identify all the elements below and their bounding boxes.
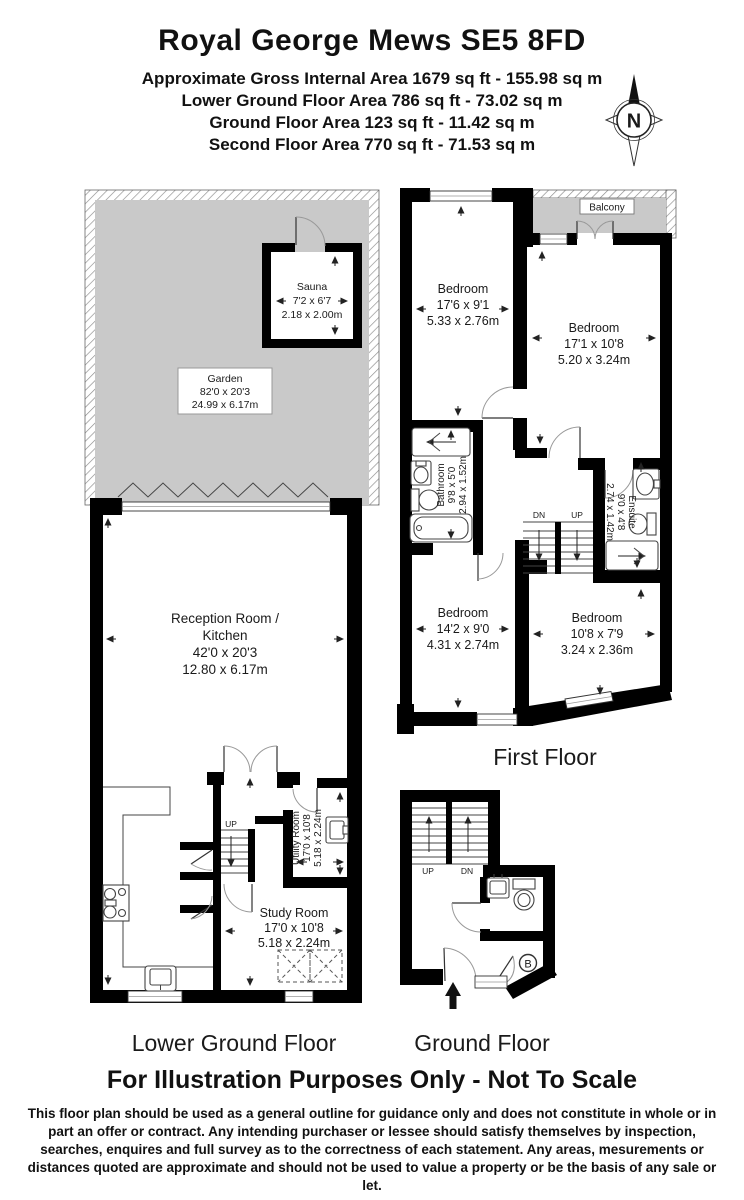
footer-title: For Illustration Purposes Only - Not To …	[0, 1066, 744, 1095]
entry-window	[475, 976, 507, 988]
boiler-badge: B	[520, 955, 537, 972]
utility-name: Utility Room	[291, 811, 302, 865]
ensuite-shower-icon	[606, 541, 658, 570]
study-window	[285, 991, 313, 1002]
first-floor-plan: Balcony	[397, 188, 676, 734]
bedroom-small-metric: 3.24 x 2.36m	[561, 643, 633, 657]
reception-name-line2: Kitchen	[202, 628, 247, 643]
bathroom: Bathroom 9'8 x 5'0 2.94 x 1.52m	[410, 428, 472, 542]
compass-north-label: N	[627, 111, 641, 133]
bedroom-small-imperial: 10'8 x 7'9	[571, 627, 624, 641]
bathroom-name: Bathroom	[436, 463, 447, 506]
garden-name: Garden	[207, 373, 242, 385]
bathroom-imperial: 9'8 x 5'0	[447, 466, 458, 503]
first-floor-caption: First Floor	[493, 744, 597, 770]
ensuite-imperial: 9'0 x 4'8	[615, 494, 626, 531]
study-metric: 5.18 x 2.24m	[258, 936, 330, 950]
garden-imperial: 82'0 x 20'3	[200, 386, 250, 398]
kitchen-window	[128, 991, 182, 1002]
reception-name-line1: Reception Room /	[171, 611, 279, 626]
balcony-label-box: Balcony	[580, 199, 634, 214]
ground-floor-caption: Ground Floor	[414, 1030, 550, 1056]
bathtub-icon	[410, 514, 472, 542]
ground-stairs-dn-label: DN	[461, 866, 473, 876]
sauna-name: Sauna	[297, 281, 328, 293]
sauna-metric: 2.18 x 2.00m	[282, 309, 343, 321]
study-imperial: 17'0 x 10'8	[264, 921, 324, 935]
first-floor-stairs-dn-label: DN	[533, 510, 545, 520]
balcony-edge-hatch-top	[533, 190, 676, 198]
floorplan-page: { "header": { "title": "Royal George Mew…	[0, 0, 744, 1200]
bedroom-front-name: Bedroom	[438, 282, 489, 296]
bedroom-front-imperial: 17'6 x 9'1	[437, 298, 490, 312]
garden-label-box: Garden 82'0 x 20'3 24.99 x 6.17m	[178, 368, 272, 414]
sauna-imperial: 7'2 x 6'7	[293, 295, 332, 307]
balcony-edge-hatch-right	[666, 190, 676, 238]
lower-ground-stairs-up-label: UP	[225, 819, 237, 829]
shower-icon	[412, 428, 470, 456]
lower-ground-floor-caption: Lower Ground Floor	[132, 1030, 337, 1056]
entrance-arrow-icon	[445, 982, 461, 1009]
first-floor-stairs-up-label: UP	[571, 510, 583, 520]
bedroom-front-window	[430, 191, 492, 201]
bedroom-rear-name: Bedroom	[569, 321, 620, 335]
utility-metric: 5.18 x 2.24m	[313, 809, 324, 867]
ensuite-name: Ensuite	[626, 495, 637, 529]
bathroom-metric: 2.94 x 1.52m	[458, 456, 469, 514]
bedroom-mid-name: Bedroom	[438, 606, 489, 620]
hob-icon	[103, 885, 129, 921]
ground-floor-plan: UP DN B	[400, 790, 557, 1009]
bathroom-sink-icon	[411, 461, 431, 485]
bathroom-toilet-icon	[411, 489, 439, 511]
bedroom-front-metric: 5.33 x 2.76m	[427, 314, 499, 328]
boiler-label: B	[524, 959, 531, 971]
bedroom-rear-imperial: 17'1 x 10'8	[564, 337, 624, 351]
utility-sink-icon	[326, 817, 348, 843]
study-name: Study Room	[260, 906, 329, 920]
balcony-window	[540, 234, 567, 244]
bedroom-small-name: Bedroom	[572, 611, 623, 625]
footer-disclaimer: This floor plan should be used as a gene…	[19, 1105, 725, 1195]
ground-stairs-up-label: UP	[422, 866, 434, 876]
bedroom-mid-imperial: 14'2 x 9'0	[437, 622, 490, 636]
wc-sink-icon	[487, 874, 509, 898]
reception-metric: 12.80 x 6.17m	[182, 662, 268, 677]
reception-garden-window	[122, 502, 330, 511]
floorplan-drawing: N Sauna 7'2 x 6'7 2.18 x 2.00m Garden 82…	[0, 0, 744, 1200]
kitchen-sink-icon	[145, 966, 176, 991]
bedroom-rear-metric: 5.20 x 3.24m	[558, 353, 630, 367]
bedroom-mid-metric: 4.31 x 2.74m	[427, 638, 499, 652]
balcony-name: Balcony	[589, 203, 625, 214]
wc-toilet-icon	[513, 879, 535, 910]
lower-ground-floor-plan: Sauna 7'2 x 6'7 2.18 x 2.00m Garden 82'0…	[85, 190, 379, 1003]
garden-metric: 24.99 x 6.17m	[192, 399, 259, 411]
bedroom-mid-window	[477, 714, 517, 725]
north-compass-icon: N	[606, 74, 662, 166]
utility-imperial: 17'0 x 10'8	[302, 814, 313, 862]
footer: For Illustration Purposes Only - Not To …	[0, 1066, 744, 1195]
ensuite-metric: 2.74 x 1.42m	[604, 483, 615, 541]
reception-imperial: 42'0 x 20'3	[193, 645, 257, 660]
